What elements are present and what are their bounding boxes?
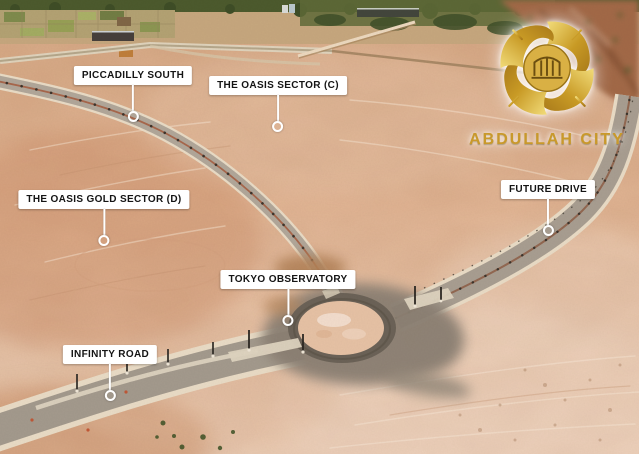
- location-marker-icon: [283, 315, 294, 326]
- map-label-tokyo-observatory: TOKYO OBSERVATORY: [220, 270, 355, 326]
- label-text: THE OASIS GOLD SECTOR (D): [18, 190, 189, 209]
- label-text: THE OASIS SECTOR (C): [209, 76, 347, 95]
- leader-line: [547, 199, 549, 225]
- map-label-oasis-gold-sector-d: THE OASIS GOLD SECTOR (D): [18, 190, 189, 246]
- location-marker-icon: [104, 390, 115, 401]
- label-text: INFINITY ROAD: [63, 345, 157, 364]
- map-label-infinity-road: INFINITY ROAD: [63, 345, 157, 401]
- abdullah-city-logo: ABDULLAH CITY: [462, 14, 632, 149]
- leader-line: [132, 85, 134, 111]
- label-text: FUTURE DRIVE: [501, 180, 595, 199]
- aerial-photo: ABDULLAH CITY PICCADILLY SOUTH THE OASIS…: [0, 0, 639, 454]
- location-marker-icon: [99, 235, 110, 246]
- location-marker-icon: [128, 111, 139, 122]
- leader-line: [103, 209, 105, 235]
- leader-line: [287, 289, 289, 315]
- map-label-future-drive: FUTURE DRIVE: [501, 180, 595, 236]
- logo-wordmark: ABDULLAH CITY: [462, 131, 632, 149]
- location-marker-icon: [543, 225, 554, 236]
- label-text: TOKYO OBSERVATORY: [220, 270, 355, 289]
- map-label-oasis-sector-c: THE OASIS SECTOR (C): [209, 76, 347, 132]
- location-marker-icon: [272, 121, 283, 132]
- leader-line: [277, 95, 279, 121]
- logo-emblem-icon: [489, 14, 605, 130]
- label-text: PICCADILLY SOUTH: [74, 66, 192, 85]
- leader-line: [109, 364, 111, 390]
- map-label-piccadilly-south: PICCADILLY SOUTH: [74, 66, 192, 122]
